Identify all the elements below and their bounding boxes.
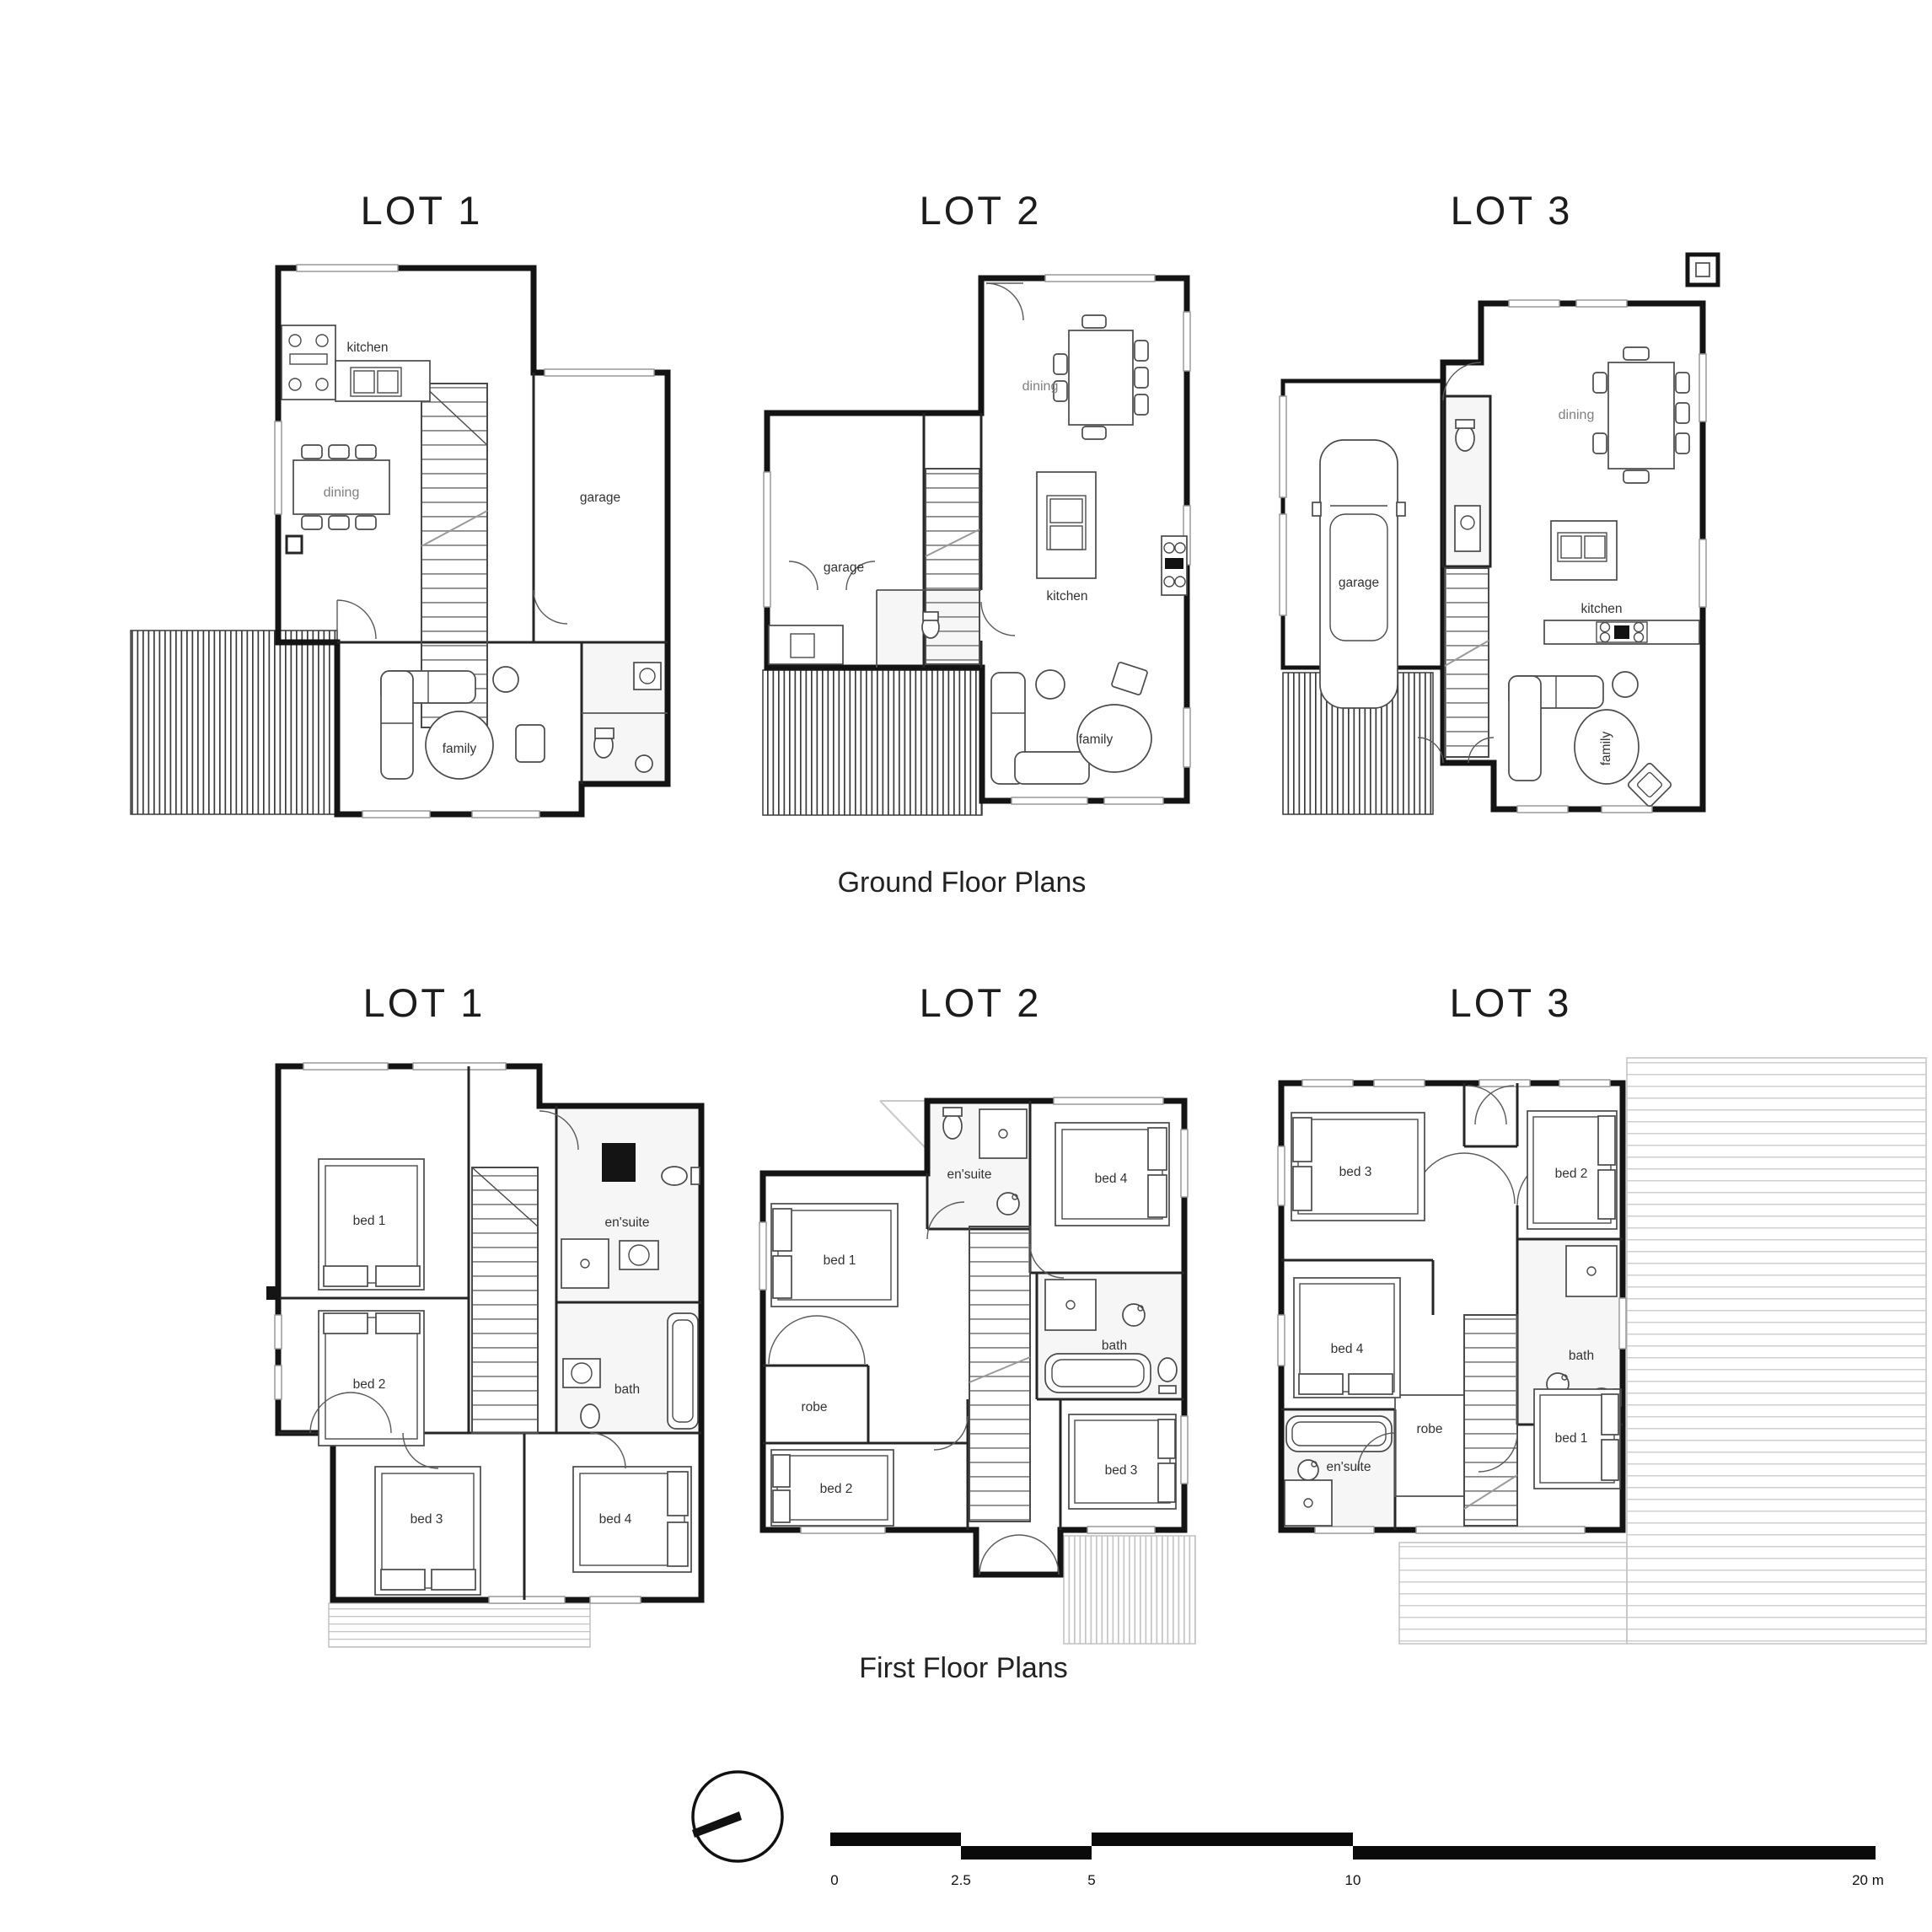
toilet-icon [1456, 426, 1474, 451]
room-label-family: family [443, 742, 477, 756]
shower-icon [1285, 1480, 1332, 1526]
vanity-icon [1455, 506, 1480, 551]
ground-floor-caption: Ground Floor Plans [838, 867, 1087, 899]
scale-tick-20m: 20 m [1852, 1872, 1884, 1888]
room-label-bed1: bed 1 [824, 1253, 856, 1268]
room-label-bed1: bed 1 [1555, 1431, 1588, 1446]
closet [602, 1143, 636, 1182]
staircase [472, 1167, 538, 1433]
room-label-garage: garage [824, 561, 864, 575]
stove-icon [282, 325, 335, 400]
shower-icon [561, 1239, 609, 1288]
room-label-ensuite: en'suite [1327, 1460, 1371, 1474]
window-icon [472, 811, 539, 818]
room-label-bed4: bed 4 [1095, 1172, 1128, 1186]
room-label-kitchen: kitchen [1046, 589, 1087, 604]
room-label-ensuite: en'suite [947, 1167, 992, 1182]
room-label-kitchen: kitchen [346, 341, 388, 355]
window-icon [1045, 275, 1155, 282]
first-lot1-plan: bed 1 bed 2 en'suite bath bed 3 bed 4 [211, 969, 733, 1661]
window-icon [275, 1315, 282, 1349]
balcony [329, 1603, 590, 1647]
window-icon [1278, 1315, 1285, 1366]
side-table-icon [1036, 670, 1065, 699]
side-table-icon [493, 667, 518, 692]
scale-tick-5: 5 [1087, 1872, 1095, 1888]
window-icon [759, 1222, 766, 1290]
window-icon [1479, 1080, 1530, 1087]
staircase [1445, 568, 1489, 757]
car-icon [1312, 440, 1405, 708]
scale-tick-0: 0 [830, 1872, 838, 1888]
armchair-icon [1627, 762, 1672, 808]
window-icon [1181, 1416, 1188, 1484]
room-label-bed2: bed 2 [820, 1482, 853, 1496]
window-icon [1012, 797, 1087, 804]
room-label-bed2: bed 2 [353, 1377, 386, 1392]
window-icon [1315, 1527, 1374, 1533]
room-label-bed3: bed 3 [411, 1512, 443, 1527]
window-icon [1054, 1097, 1163, 1104]
window-icon [590, 1597, 641, 1603]
window-icon [275, 421, 282, 514]
ground-lot1-plan: kitchen dining garage family [118, 249, 691, 839]
window-icon [362, 811, 430, 818]
window-icon [303, 1063, 388, 1070]
deck [763, 670, 982, 815]
stove-icon [1544, 620, 1699, 644]
first-lot2-plan: en'suite bed 4 bed 1 robe bath bed 2 bed… [750, 969, 1222, 1661]
room-label-garage: garage [1339, 576, 1379, 590]
room-label-dining: dining [1022, 379, 1059, 394]
kitchen-island-sink-icon [1037, 472, 1096, 578]
roof-terrace [1399, 1543, 1627, 1644]
shower-icon [1566, 1246, 1617, 1296]
window-icon [1416, 1527, 1585, 1533]
north-arrow-icon [683, 1762, 792, 1871]
ground-lot1-title: LOT 1 [361, 187, 483, 233]
window-icon [489, 1597, 565, 1603]
robe-doors [769, 1316, 865, 1364]
basin-icon [636, 755, 652, 772]
closet-doors [1468, 1086, 1514, 1124]
room-label-bed3: bed 3 [1339, 1165, 1372, 1179]
room-label-garage: garage [580, 491, 620, 505]
room-label-bath: bath [1569, 1349, 1594, 1363]
stove-icon [1162, 536, 1187, 595]
room-label-bed3: bed 3 [1105, 1463, 1138, 1478]
window-icon [1517, 806, 1568, 813]
window-icon [275, 1366, 282, 1399]
room-label-ensuite: en'suite [605, 1216, 650, 1230]
bed-icon [375, 1467, 480, 1595]
window-icon [1509, 300, 1559, 307]
window-icon [1576, 300, 1627, 307]
north-needle [692, 1811, 742, 1838]
scale-tick-10: 10 [1345, 1872, 1361, 1888]
balcony-doors [979, 1535, 1059, 1575]
bed-icon [1069, 1414, 1176, 1509]
floor-plan-sheet: LOT 1 LOT 2 LOT 3 Ground Floor Plans LOT… [0, 0, 1932, 1932]
window-icon [1181, 1130, 1188, 1197]
window-icon [1559, 1080, 1610, 1087]
basin-icon [1298, 1460, 1318, 1480]
toilet-icon [1158, 1358, 1177, 1382]
room-label-robe: robe [801, 1400, 827, 1414]
bed-icon [573, 1467, 691, 1572]
room-label-family: family [1079, 733, 1114, 747]
window-icon [545, 369, 654, 376]
ground-lot2-plan: dining garage kitchen family [750, 249, 1222, 839]
staircase [969, 1226, 1030, 1521]
garage-door-icon [1280, 514, 1286, 615]
scale-tick-2-5: 2.5 [951, 1872, 971, 1888]
shower-icon [979, 1109, 1027, 1158]
side-table-icon [1613, 672, 1638, 697]
room-label-dining: dining [1559, 408, 1595, 422]
toilet-icon [662, 1167, 687, 1185]
dining-table-icon [1593, 347, 1689, 483]
window-icon [1619, 1298, 1626, 1349]
room-label-bed1: bed 1 [353, 1214, 386, 1228]
window-icon [1699, 354, 1706, 421]
armchair-icon [516, 725, 545, 762]
toilet-icon [581, 1404, 599, 1428]
room-label-bed4: bed 4 [599, 1512, 632, 1527]
kitchen-island-sink-icon [335, 361, 430, 401]
room-label-kitchen: kitchen [1580, 602, 1622, 616]
window-icon [1374, 1080, 1425, 1087]
window-icon [1104, 797, 1163, 804]
room-label-bed4: bed 4 [1331, 1342, 1364, 1356]
window-icon [413, 1063, 506, 1070]
ground-lot3-title: LOT 3 [1451, 187, 1573, 233]
window-icon [1602, 806, 1652, 813]
dining-table-icon [1054, 315, 1148, 439]
first-lot3-plan: bed 3 bed 2 bed 4 bath en'suite robe bed… [1264, 986, 1932, 1661]
window-icon [1302, 1080, 1353, 1087]
room-label-family: family [1599, 732, 1613, 766]
window-icon [1183, 708, 1190, 767]
scale-bar: 0 2.5 5 10 20 m [809, 1812, 1922, 1905]
deck [1064, 1536, 1195, 1644]
toilet-icon [943, 1114, 962, 1139]
staircase [1464, 1315, 1517, 1526]
armchair-icon [1111, 662, 1148, 695]
room-label-bath: bath [1102, 1339, 1127, 1353]
basin-icon [997, 1193, 1019, 1215]
garage-door-icon [1280, 396, 1286, 497]
window-icon [1183, 312, 1190, 371]
window-icon [297, 265, 398, 271]
window-icon [1087, 1527, 1155, 1533]
window-icon [1278, 1146, 1285, 1205]
basin-icon [1123, 1304, 1145, 1326]
room-label-dining: dining [324, 486, 360, 500]
ground-lot3-plan: garage dining kitchen family [1264, 236, 1787, 843]
roof-terrace [1627, 1058, 1926, 1644]
deck [131, 631, 337, 814]
room-label-bath: bath [614, 1382, 640, 1397]
room-label-robe: robe [1416, 1422, 1442, 1436]
kitchen-island-sink-icon [1551, 521, 1617, 580]
ground-lot2-title: LOT 2 [920, 187, 1042, 233]
window-icon [801, 1527, 885, 1533]
room-label-bed2: bed 2 [1555, 1167, 1588, 1181]
bed-icon [1294, 1278, 1400, 1398]
garage-door-icon [764, 472, 770, 607]
shower-icon [1045, 1280, 1096, 1330]
post-icon [1688, 255, 1718, 285]
window-icon [1699, 539, 1706, 607]
